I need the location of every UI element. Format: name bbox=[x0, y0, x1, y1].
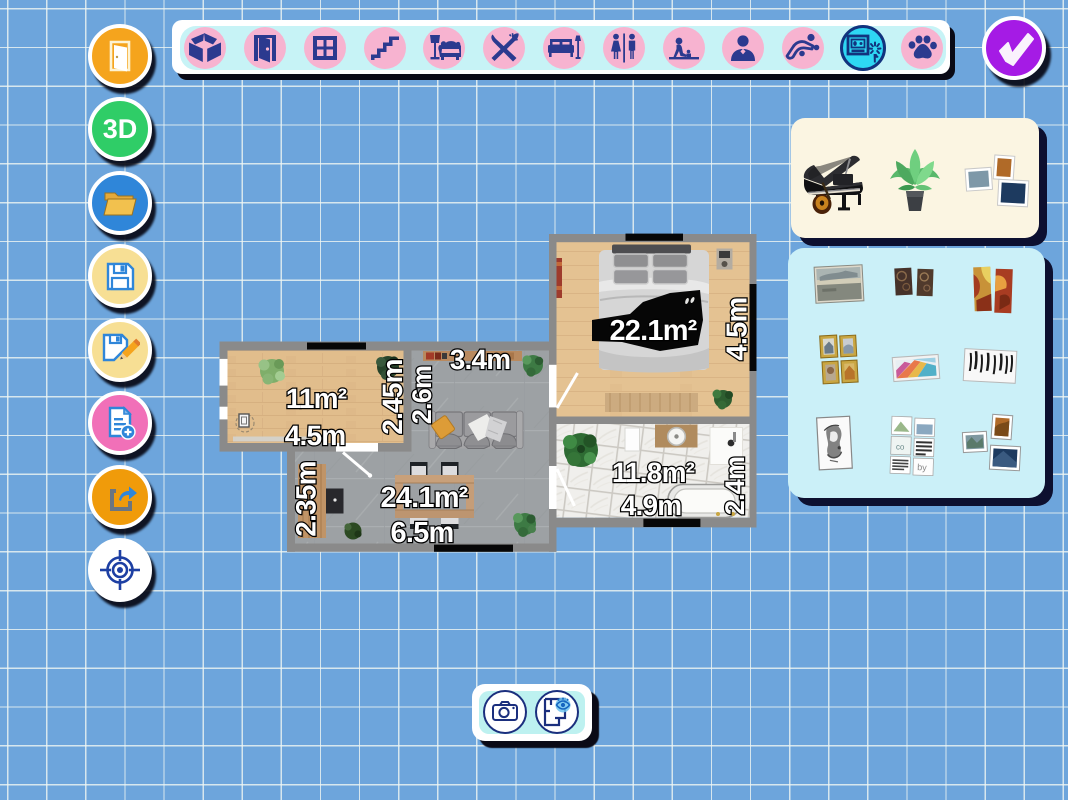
svg-text:2.45m: 2.45m bbox=[377, 359, 408, 434]
svg-text:11.8m²: 11.8m² bbox=[612, 457, 695, 488]
svg-text:4.5m: 4.5m bbox=[285, 420, 346, 451]
svg-text:2.6m: 2.6m bbox=[407, 366, 437, 424]
svg-text:22.1m²: 22.1m² bbox=[609, 315, 697, 347]
svg-text:11m²: 11m² bbox=[286, 383, 347, 414]
svg-text:4.9m: 4.9m bbox=[621, 490, 682, 521]
svg-text:2.4m: 2.4m bbox=[720, 457, 750, 515]
svg-text:2.35m: 2.35m bbox=[291, 461, 322, 536]
svg-text:4.5m: 4.5m bbox=[722, 298, 754, 361]
svg-text:24.1m²: 24.1m² bbox=[380, 482, 468, 514]
svg-text:6.5m: 6.5m bbox=[391, 517, 454, 549]
svg-text:3.4m: 3.4m bbox=[450, 344, 511, 375]
